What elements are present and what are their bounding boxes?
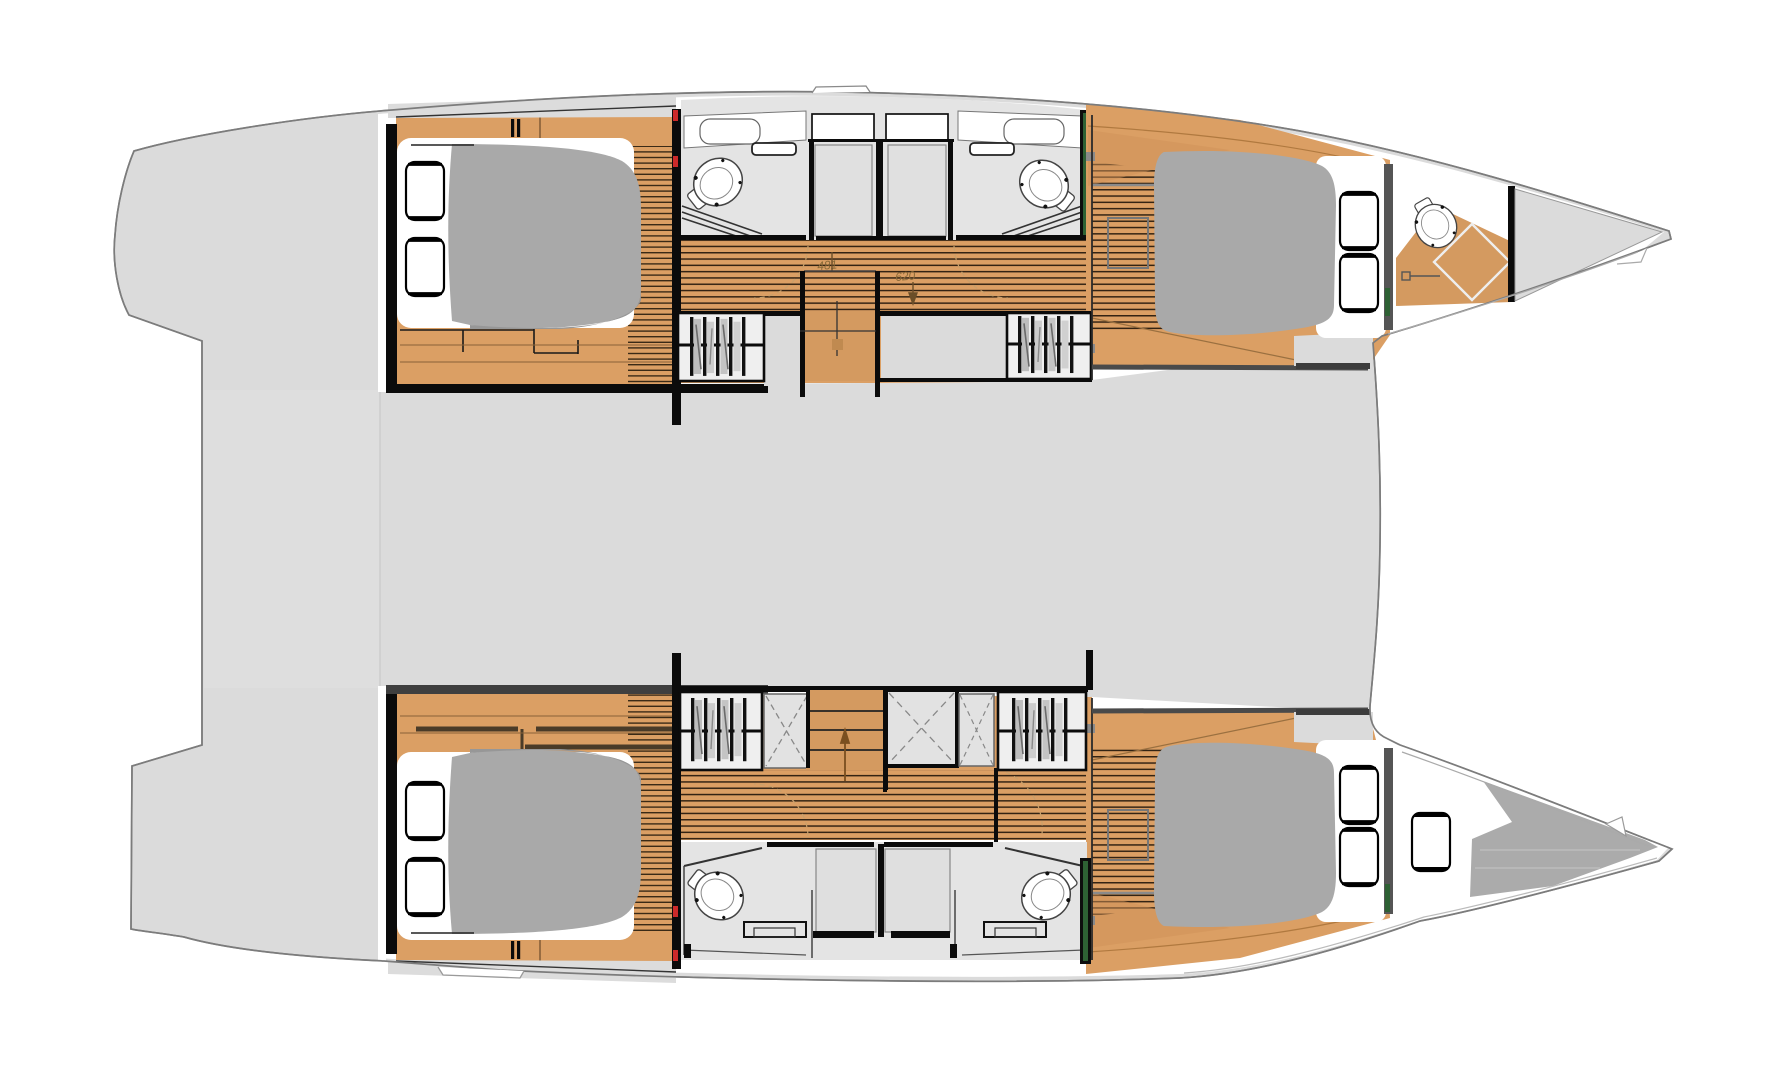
svg-text:620: 620 — [895, 268, 916, 284]
